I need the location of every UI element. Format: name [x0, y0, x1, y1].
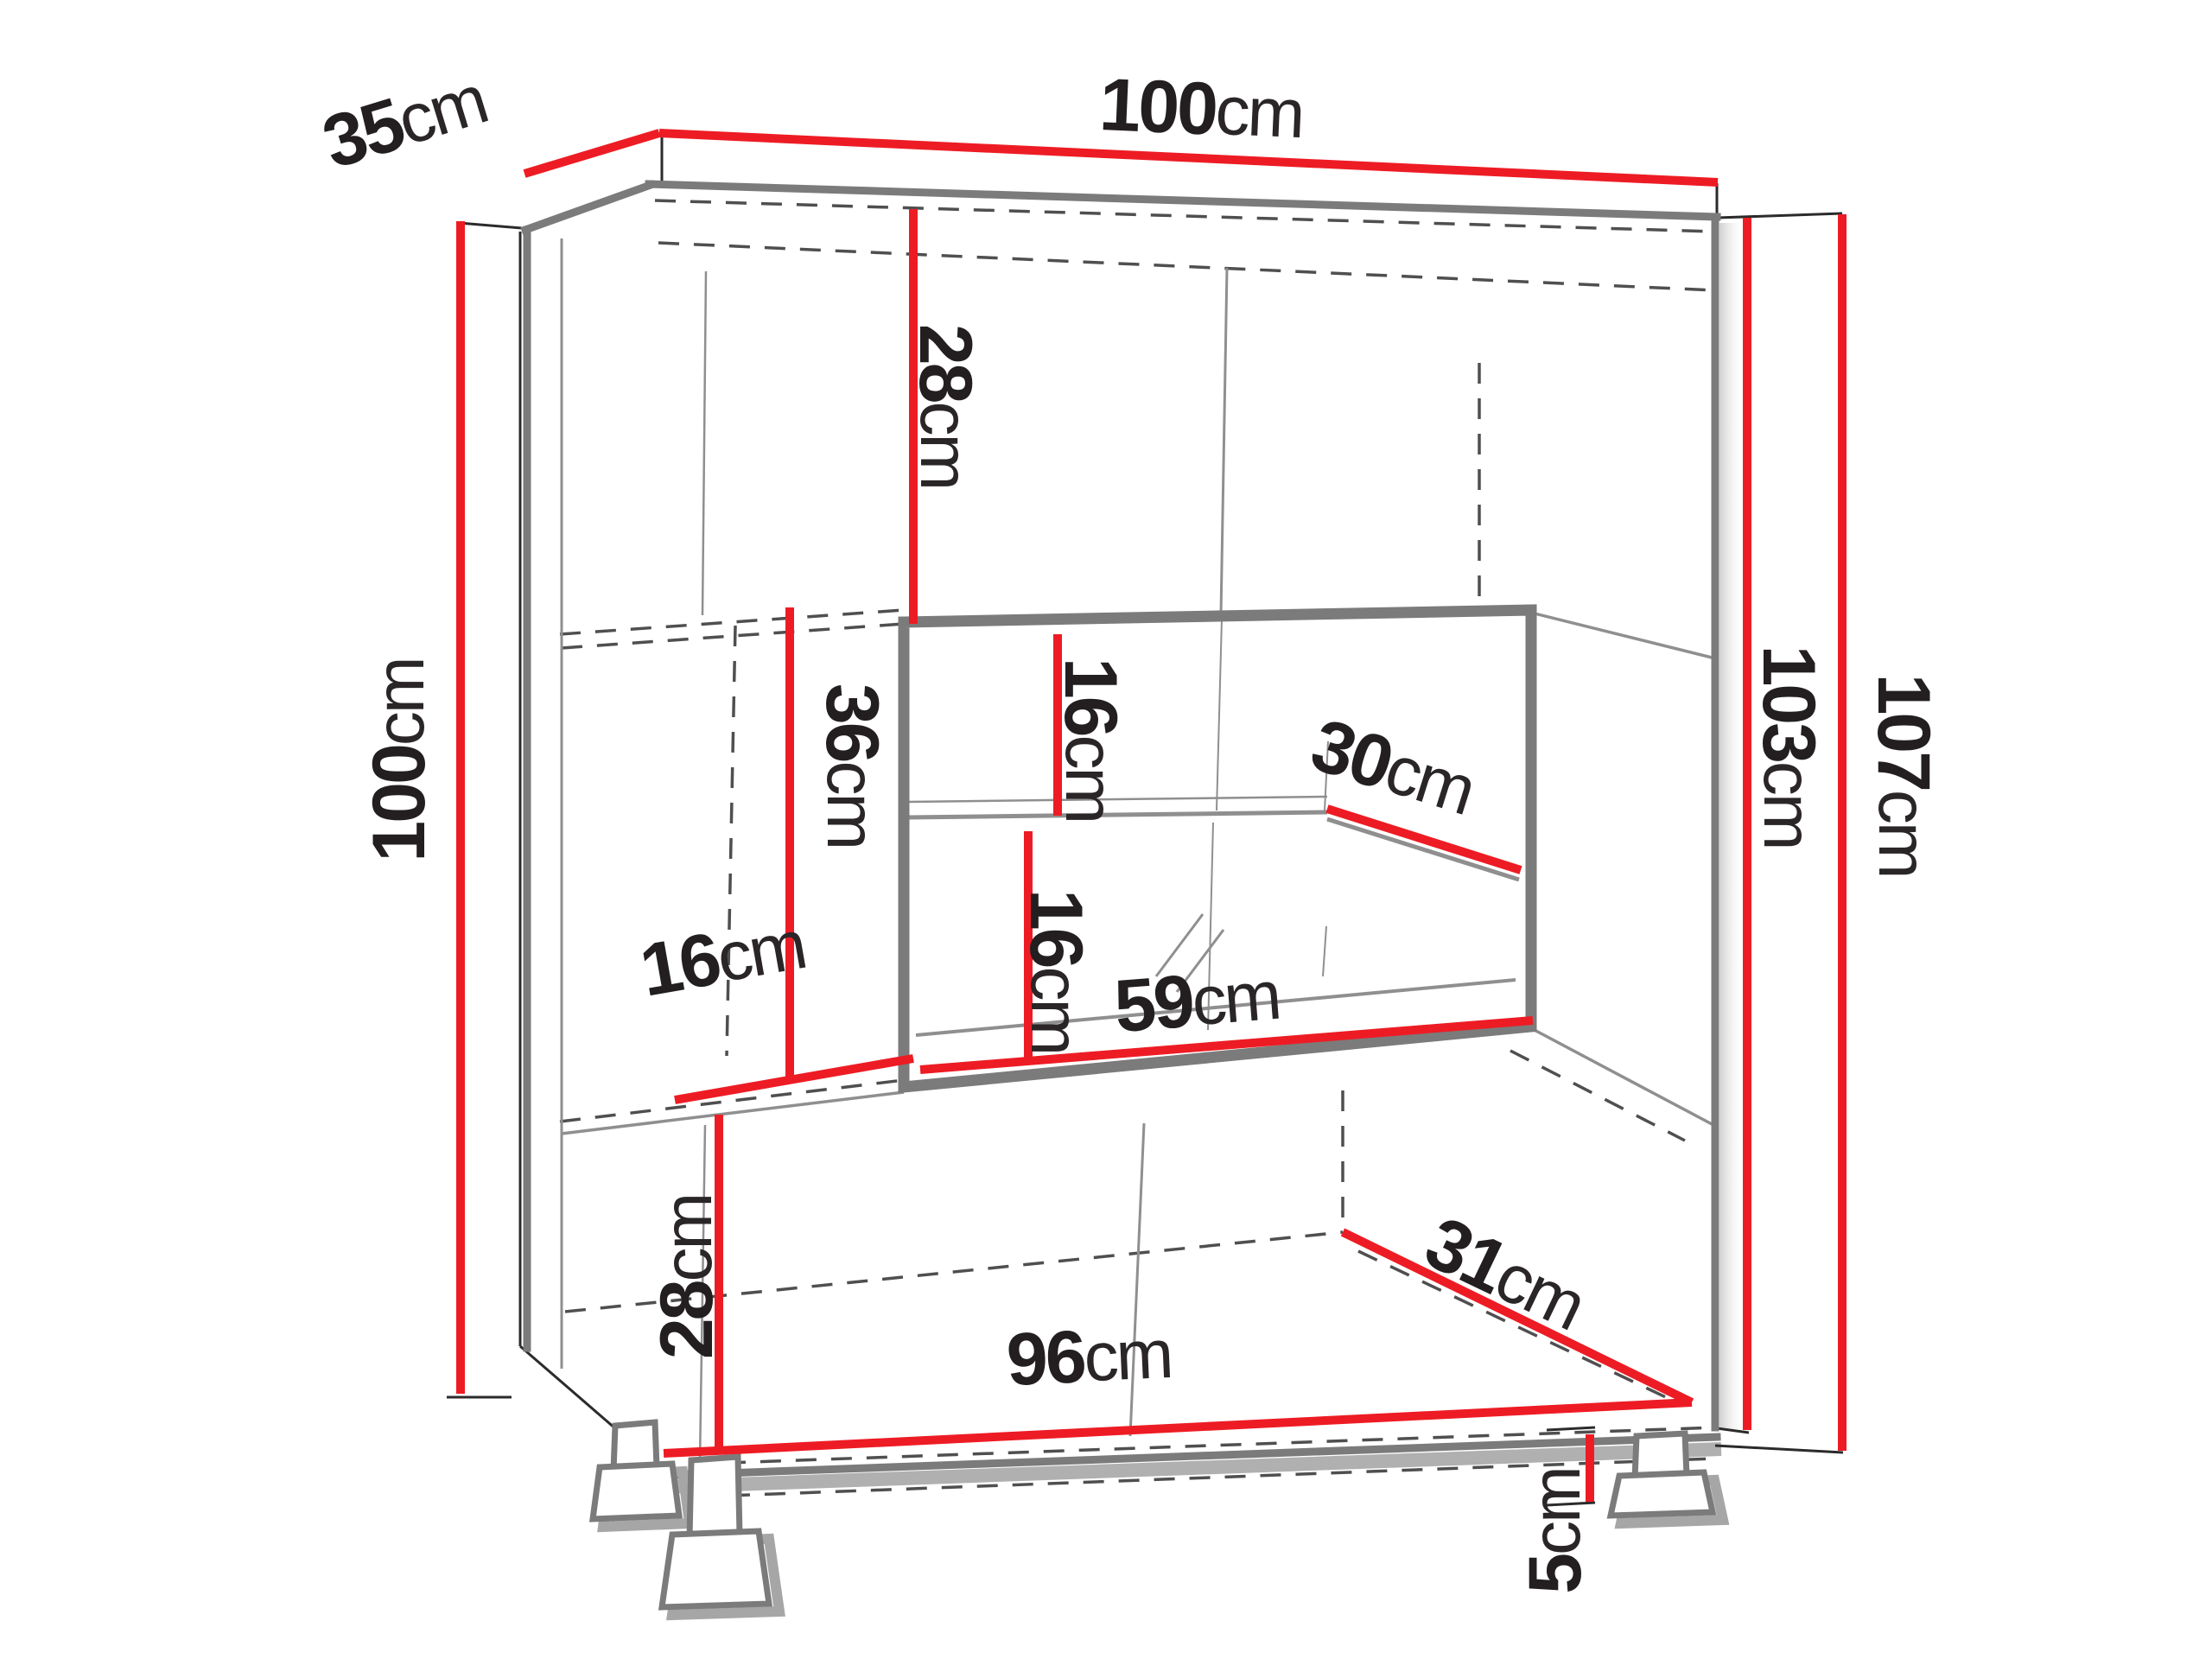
dim-label-bottom-depth: 31cm: [1413, 1201, 1597, 1347]
tick-right-107-bottom: [1715, 1446, 1843, 1452]
dim-label-depth-top: 35cm: [314, 57, 495, 184]
center-divider-top: [1221, 268, 1227, 615]
dim-label-bottom-section: 28cm: [645, 1195, 728, 1359]
right-side-shade: [1719, 223, 1745, 1429]
niche-back-crease-lower: [1323, 926, 1326, 976]
dim-label-middle-section: 36cm: [810, 683, 893, 848]
foot-base-back-left: [593, 1464, 679, 1519]
tick-left-top: [459, 223, 522, 228]
mid-shelf-right-edge: [1531, 613, 1715, 658]
diagram-page: 35cm 100cm 100cm 103cm 107cm 28cm 16cm 3…: [0, 0, 2212, 1659]
dim-label-niche-lower-gap: 16cm: [1014, 889, 1097, 1053]
dim-label-height-total-right: 107cm: [1862, 673, 1945, 876]
dim-label-width-top: 100cm: [1097, 63, 1304, 155]
tick-feet-top: [1547, 1427, 1595, 1430]
foot-base-front-left: [662, 1531, 769, 1607]
top-edge: [649, 184, 1717, 217]
dim-label-niche-upper-gap: 16cm: [1049, 658, 1132, 822]
dim-label-left-section: 16cm: [634, 902, 810, 1013]
dim-label-height-body-right: 103cm: [1747, 645, 1830, 848]
dashed-top-inner-edge: [658, 243, 1715, 290]
dim-line-depth-top-35: [524, 133, 659, 174]
niche-back-seam-upper: [1217, 619, 1222, 810]
interior-left-wall-top: [702, 271, 706, 615]
foot-neck-front-left: [690, 1457, 740, 1538]
dashed-top-back-edge: [655, 200, 1715, 232]
dim-label-top-section: 28cm: [904, 324, 987, 488]
top-left-depth-edge: [525, 185, 651, 230]
dashed-mid-shelf-front-left: [562, 624, 904, 648]
dim-label-niche-width: 59cm: [1111, 953, 1281, 1049]
dim-label-bottom-width: 96cm: [1005, 1312, 1173, 1402]
foot-base-right: [1611, 1472, 1713, 1516]
dim-label-height-left: 100cm: [358, 658, 441, 861]
dim-label-feet-height: 5cm: [1514, 1468, 1597, 1593]
dashed-mid-shelf-back-left: [560, 610, 904, 634]
glass-shelf-depth-edge: [1327, 819, 1519, 880]
dimension-labels: 35cm 100cm 100cm 103cm 107cm 28cm 16cm 3…: [314, 57, 1945, 1593]
lower-shelf-left-edge: [562, 1092, 904, 1134]
dim-line-shelf-depth-30: [1327, 809, 1521, 870]
cabinet-dimension-diagram: 35cm 100cm 100cm 103cm 107cm 28cm 16cm 3…: [0, 0, 2212, 1659]
tick-right-top-extension: [1718, 213, 1842, 218]
